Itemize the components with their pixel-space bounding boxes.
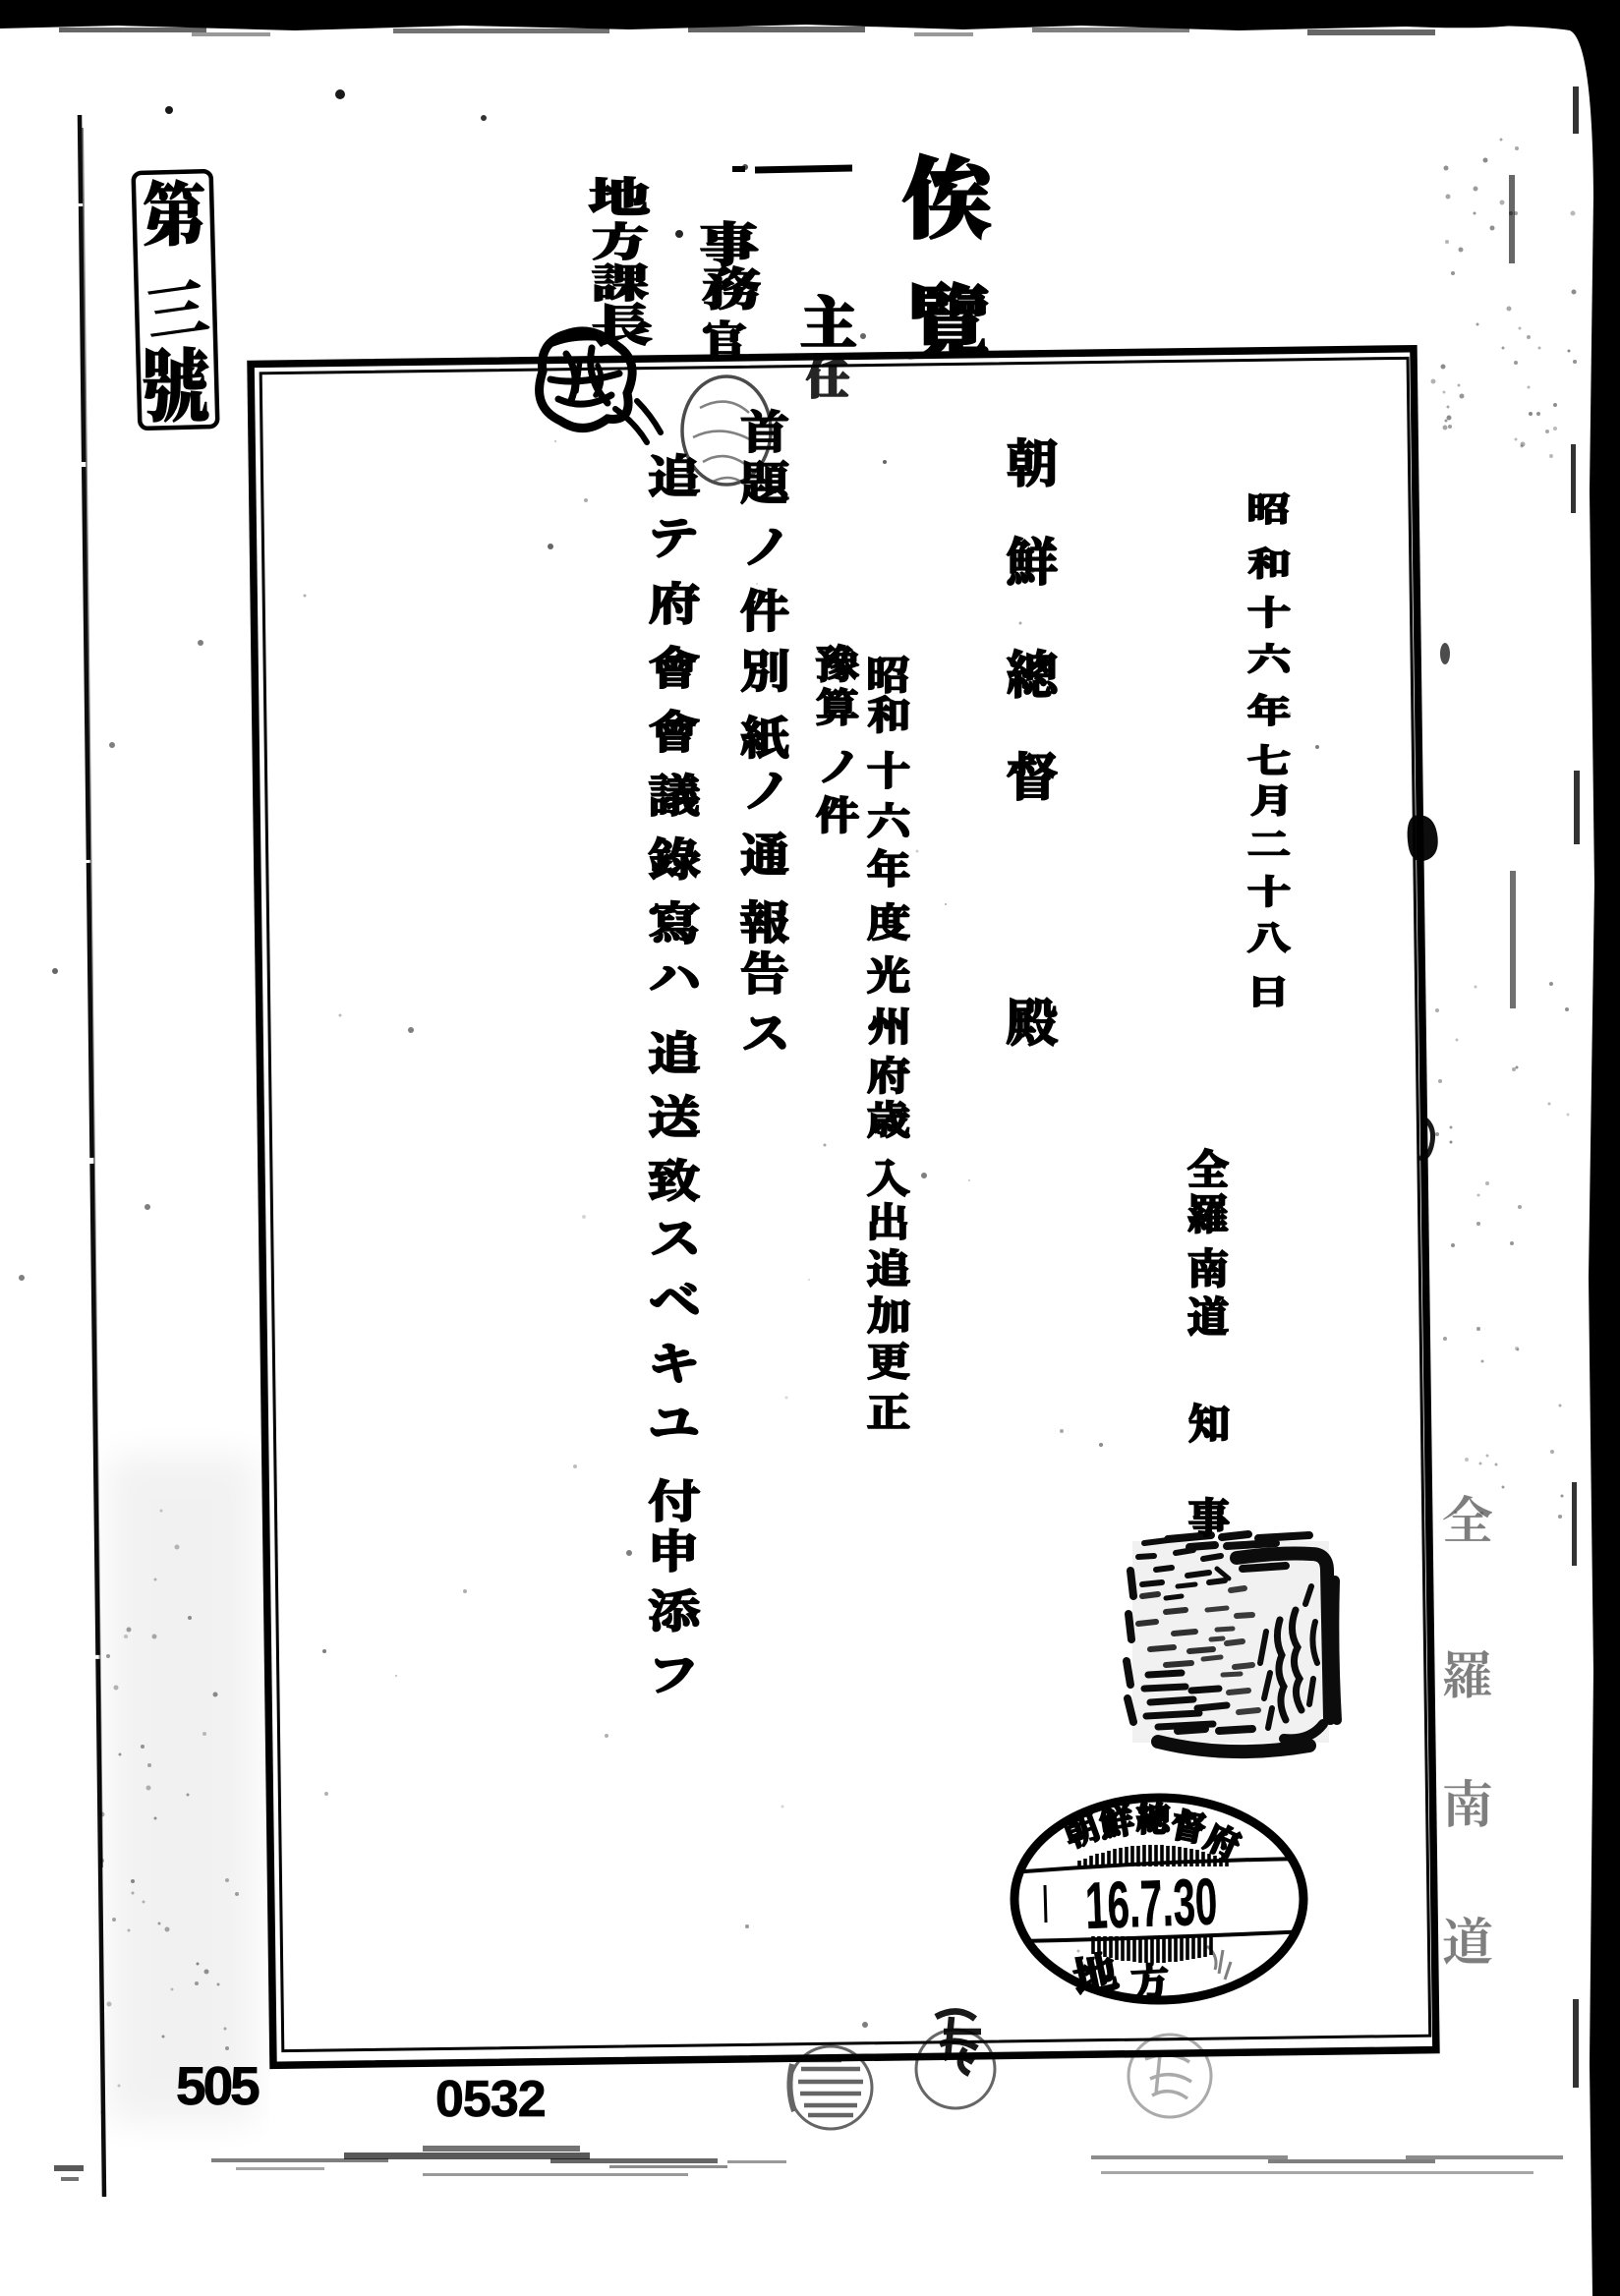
- svg-text:16.7.30: 16.7.30: [1084, 1865, 1219, 1943]
- svg-text:0532: 0532: [435, 2071, 546, 2128]
